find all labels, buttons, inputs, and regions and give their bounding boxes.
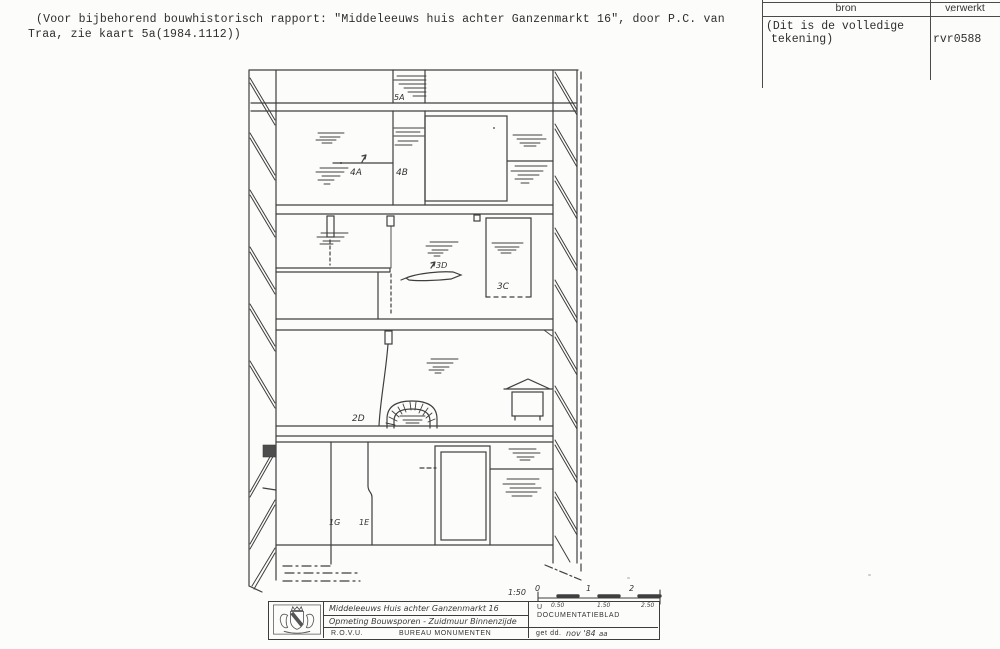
titleblock-divider-1 [323, 602, 324, 638]
lion-right-icon [306, 614, 313, 628]
initials-handwritten: aa [599, 630, 608, 638]
floor2-shading [400, 359, 458, 423]
floor2-cabinet-body [512, 392, 543, 416]
bureau-label: BUREAU MONUMENTEN [399, 630, 491, 637]
floor4-beam-dot [340, 162, 342, 164]
floor3-console-3d [401, 262, 461, 281]
floor4-panel [425, 116, 507, 201]
room-label-1e: 1E [359, 518, 370, 527]
floor1-door-outer [435, 446, 490, 545]
scroll-base [284, 631, 310, 633]
title-block: Middeleeuws Huis achter Ganzenmarkt 16 O… [268, 601, 660, 640]
lion-left-icon [280, 614, 287, 628]
floor1-partitions [263, 442, 553, 564]
floor2-corner-tick [544, 330, 552, 336]
left-wall-hatching [250, 78, 275, 589]
floor3-hanging-block [327, 216, 334, 237]
shield-bend [292, 613, 302, 626]
titleblock-midline [323, 615, 528, 616]
floor3-small-block [474, 215, 480, 221]
room-label-3d: 3D [436, 261, 447, 270]
floor3-shelf [276, 268, 390, 319]
room-label-4a: 4A [350, 168, 362, 178]
doc-u-label: U [537, 604, 543, 611]
building-section-drawing: 5A 4A 4B 3D 3C 2D 1G 1E 1:50 0 1 2 0.50 … [0, 0, 1000, 649]
floor3-shading [317, 233, 523, 256]
titleblock-rowline [323, 627, 658, 628]
date-label: get dd. [536, 630, 562, 637]
wall-repair-patch [263, 445, 276, 457]
wall-outlines [249, 70, 578, 592]
right-wall-base-dashdot [545, 565, 581, 580]
date-value-handwritten: nov '84 [566, 629, 596, 638]
scale-tick-0: 0 [535, 584, 540, 593]
scale-ratio-label: 1:50 [508, 588, 526, 597]
ground-dash-dot-lines [283, 566, 360, 581]
floor3-block-dashes [330, 240, 391, 316]
floor3-peg [387, 216, 394, 226]
floor2-partition [379, 344, 388, 426]
scan-speck [627, 577, 630, 579]
scale-tick-2: 2 [629, 584, 634, 593]
room-label-4b: 4B [396, 168, 408, 178]
floor1-shading [503, 449, 541, 496]
room-label-2d: 2D [352, 414, 365, 424]
org-label: R.O.V.U. [331, 630, 363, 637]
scale-tick-1: 1 [586, 584, 591, 593]
right-wall-hatching [555, 72, 577, 562]
room-label-5a: 5A [394, 93, 405, 102]
floor4-panel-dot [493, 127, 495, 129]
drawing-title-line1: Middeleeuws Huis achter Ganzenmarkt 16 [329, 604, 499, 613]
crown-icon [291, 607, 302, 611]
floor1-door-inner [441, 452, 486, 540]
scan-speck [950, 10, 952, 12]
floor2-cabinet [504, 379, 552, 420]
drawing-title-line2: Opmeting Bouwsporen - Zuidmuur Binnenzij… [329, 617, 517, 626]
room-label-1g: 1G [329, 518, 340, 527]
floor4-beam-line [333, 155, 393, 163]
scan-speck [868, 574, 871, 576]
room-label-3c: 3C [497, 282, 510, 292]
titleblock-divider-2 [528, 602, 529, 638]
doc-type-label: DOCUMENTATIEBLAD [537, 612, 620, 619]
utrecht-coat-of-arms [272, 604, 322, 636]
floor4-partitions [393, 111, 553, 205]
floor2-hanging-block [385, 331, 392, 344]
